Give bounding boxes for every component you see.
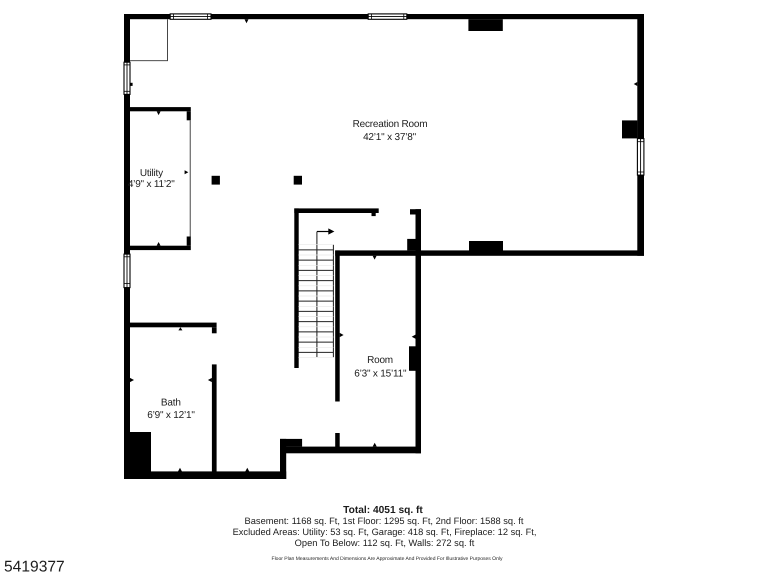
svg-text:6’3" x 15’11": 6’3" x 15’11": [354, 368, 407, 379]
svg-text:6’9" x 12’1": 6’9" x 12’1": [147, 410, 195, 421]
svg-text:5419377: 5419377: [4, 559, 65, 576]
svg-text:Floor Plan Measurements And Di: Floor Plan Measurements And Dimensions A…: [272, 556, 503, 562]
svg-text:Open To Below: 112 sq. Ft, Wal: Open To Below: 112 sq. Ft, Walls: 272 sq…: [295, 538, 475, 548]
svg-text:Total: 4051 sq. ft: Total: 4051 sq. ft: [343, 505, 423, 516]
svg-text:Room: Room: [367, 355, 393, 366]
svg-text:Recreation Room: Recreation Room: [353, 119, 428, 130]
svg-text:42’1" x 37’8": 42’1" x 37’8": [363, 132, 417, 143]
svg-text:Basement: 1168 sq. Ft, 1st Flo: Basement: 1168 sq. Ft, 1st Floor: 1295 s…: [245, 516, 524, 526]
svg-text:Utility: Utility: [140, 168, 163, 179]
svg-text:Excluded Areas: Utility: 53 sq: Excluded Areas: Utility: 53 sq. Ft, Gara…: [233, 527, 537, 537]
svg-text:4’9" x 11’2": 4’9" x 11’2": [128, 179, 175, 190]
svg-text:Bath: Bath: [161, 397, 181, 408]
